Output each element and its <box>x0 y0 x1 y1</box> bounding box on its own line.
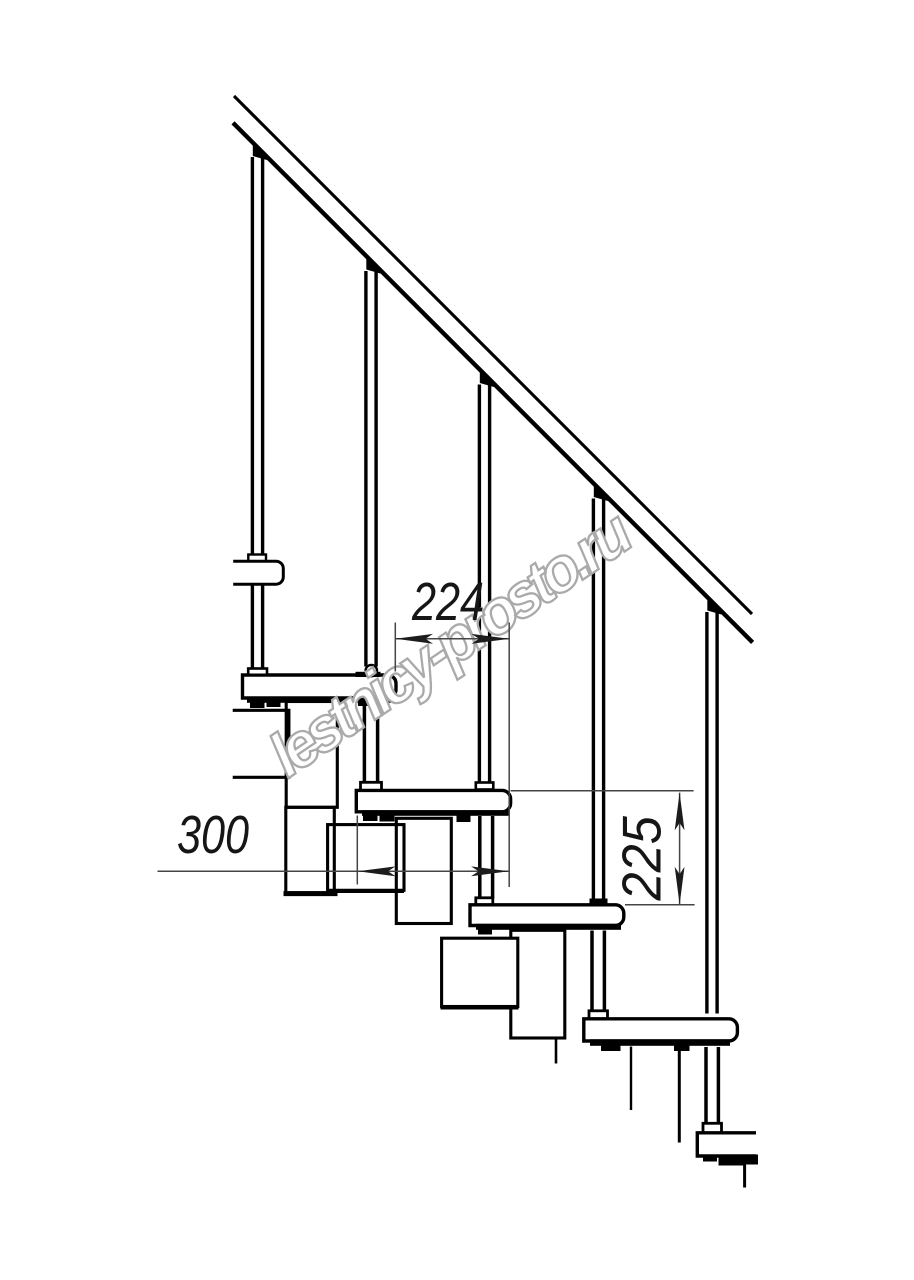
svg-text:224: 224 <box>411 573 484 633</box>
svg-text:300: 300 <box>177 806 249 866</box>
svg-text:225: 225 <box>612 816 673 902</box>
